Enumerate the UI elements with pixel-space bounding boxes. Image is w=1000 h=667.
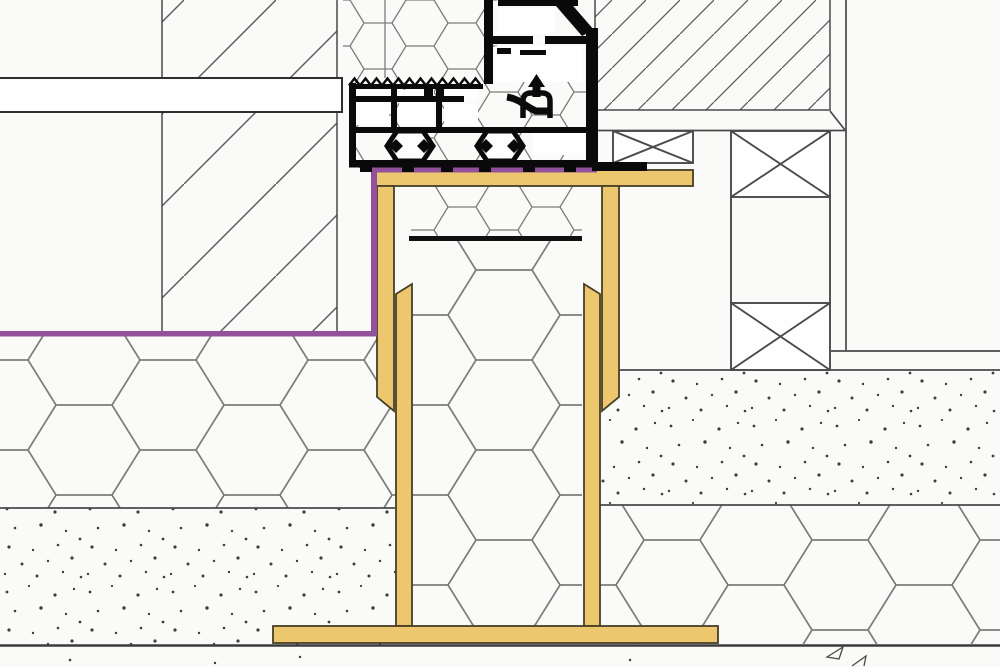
- profile-upper-bar: [356, 96, 464, 102]
- screed-right-region: [598, 370, 1000, 505]
- profile-left-wall: [349, 83, 356, 165]
- membrane-left-horizontal: [0, 331, 377, 337]
- steel-web-left-inner: [396, 284, 412, 626]
- membrane-left-vertical: [371, 167, 377, 337]
- profile-mid-bar: [352, 127, 592, 133]
- detail-drawing-canvas: [0, 0, 1000, 667]
- timber-block-3: [731, 303, 830, 370]
- steel-bottom-flange: [273, 626, 718, 643]
- steel-web-right-inner: [584, 284, 600, 626]
- steel-web-right-outer: [602, 186, 619, 411]
- mullion-left-wall: [484, 0, 493, 84]
- insulation-above-frame: [343, 0, 497, 84]
- profile-top-bar: [349, 84, 483, 89]
- brick-wall-section: [162, 0, 337, 334]
- beam-core-insulation: [411, 241, 582, 626]
- chamber-divider-a: [391, 88, 397, 128]
- mullion-fitting: [497, 48, 511, 54]
- profile-right-wall: [586, 28, 598, 167]
- profile-fixing-bracket: [592, 162, 647, 171]
- cad-detail-drawing: [0, 0, 1000, 667]
- chamber-divider-b: [436, 102, 442, 128]
- mullion-cross-bar-a: [493, 36, 533, 44]
- timber-block-2: [731, 131, 830, 197]
- profile-bottom-plate: [349, 160, 592, 168]
- mullion-cross-bar-b: [545, 36, 592, 44]
- masonry-lintel-section: [595, 0, 830, 110]
- insulation-right-band: [598, 505, 1000, 644]
- timber-block-1: [613, 131, 693, 163]
- screed-left-region: [0, 508, 399, 645]
- interior-sill-board: [0, 78, 342, 112]
- steel-web-left-outer: [377, 186, 394, 411]
- mullion-fitting-2: [520, 50, 546, 55]
- insulation-left-region: [0, 336, 399, 508]
- beam-core-divider-line: [409, 236, 582, 241]
- beam-core-insulation-top: [411, 186, 582, 240]
